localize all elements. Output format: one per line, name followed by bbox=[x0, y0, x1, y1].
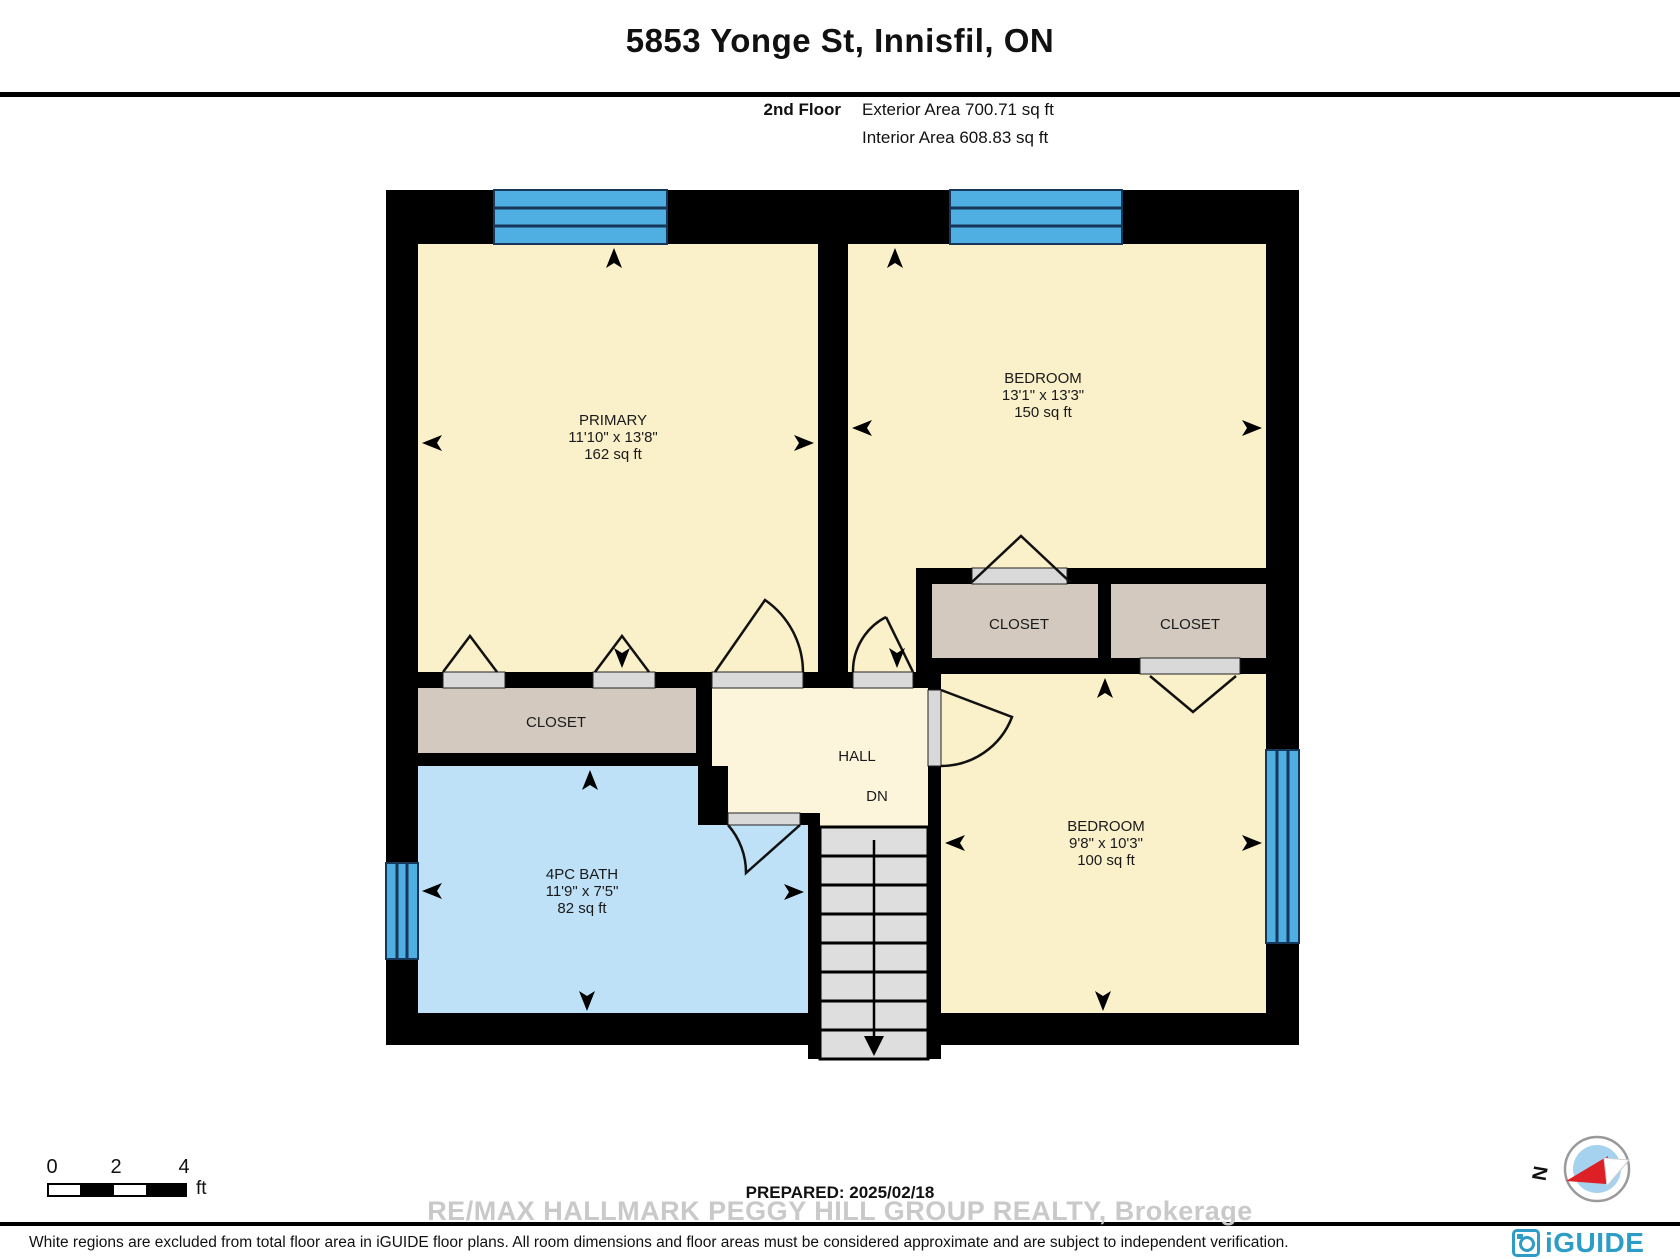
threshold-closet2 bbox=[593, 672, 655, 688]
exterior-area: Exterior Area 700.71 sq ft bbox=[862, 100, 1054, 120]
stairs-dn-label: DN bbox=[767, 788, 987, 805]
window-top-bedroom bbox=[950, 190, 1122, 244]
wall-hall-left bbox=[696, 672, 712, 766]
threshold-bath-door bbox=[728, 813, 800, 825]
plan-canvas bbox=[0, 0, 1680, 1258]
threshold-closet-right1 bbox=[972, 568, 1067, 584]
threshold-closet1 bbox=[443, 672, 505, 688]
window-top-primary bbox=[494, 190, 667, 244]
floor-label: 2nd Floor bbox=[0, 100, 841, 120]
wall-stairs-left bbox=[808, 813, 820, 1059]
room-label-bedroom-top: BEDROOM 13'1" x 13'3" 150 sq ft bbox=[933, 370, 1153, 421]
wall-closets-top bbox=[916, 568, 1266, 584]
window-left bbox=[386, 863, 418, 959]
floor-plan-page: { "header": { "title": "5853 Yonge St, I… bbox=[0, 0, 1680, 1258]
title-divider bbox=[0, 92, 1680, 97]
stairs bbox=[820, 827, 928, 1059]
disclaimer-text: White regions are excluded from total fl… bbox=[29, 1234, 1289, 1252]
threshold-bedroom-top-door bbox=[853, 672, 913, 688]
prepared-date: PREPARED: 2025/02/18 bbox=[0, 1183, 1680, 1203]
room-label-primary: PRIMARY 11'10" x 13'8" 162 sq ft bbox=[503, 412, 723, 463]
room-label-bath: 4PC BATH 11'9" x 7'5" 82 sq ft bbox=[472, 866, 692, 917]
threshold-primary-door bbox=[712, 672, 803, 688]
room-label-closet-right2: CLOSET bbox=[1080, 616, 1300, 633]
scale-tick-4: 4 bbox=[172, 1156, 196, 1179]
scale-tick-0: 0 bbox=[40, 1156, 64, 1179]
page-title: 5853 Yonge St, Innisfil, ON bbox=[0, 22, 1680, 60]
scale-tick-2: 2 bbox=[104, 1156, 128, 1179]
iguide-camera-icon bbox=[1512, 1229, 1540, 1257]
interior-area: Interior Area 608.83 sq ft bbox=[862, 128, 1048, 148]
wall-bath-stub bbox=[698, 766, 728, 825]
room-label-bedroom-bottom: BEDROOM 9'8" x 10'3" 100 sq ft bbox=[996, 818, 1216, 869]
iguide-wordmark: iGUIDE bbox=[1545, 1227, 1644, 1259]
wall-closet-bottom bbox=[386, 753, 712, 766]
window-right bbox=[1266, 750, 1299, 943]
room-label-hall: HALL bbox=[747, 748, 967, 765]
wall-divider-primary-bedroom bbox=[818, 190, 848, 688]
threshold-closet-right2 bbox=[1140, 658, 1240, 674]
wall-bath-door-bit bbox=[800, 813, 808, 825]
room-label-closet-primary: CLOSET bbox=[446, 714, 666, 731]
iguide-logo: iGUIDE bbox=[1512, 1227, 1644, 1259]
